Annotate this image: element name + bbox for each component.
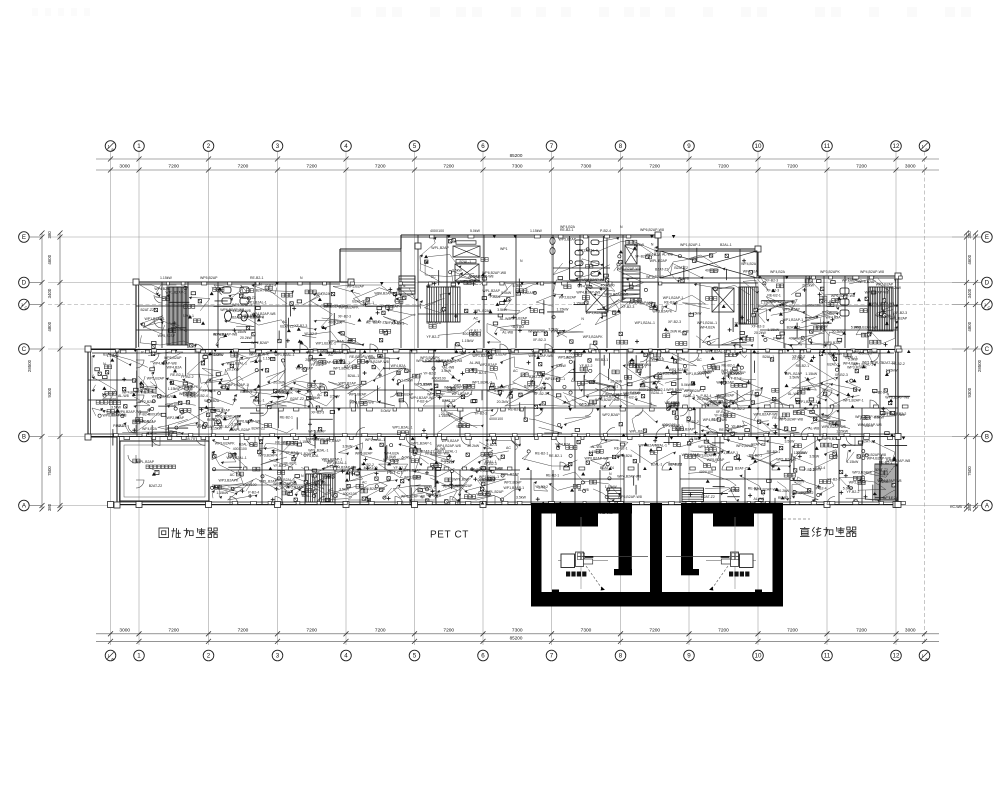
svg-text:WP1,B2AL-1: WP1,B2AL-1 (246, 300, 266, 304)
svg-text:7300: 7300 (581, 627, 592, 633)
svg-text:RE-B2-1: RE-B2-1 (535, 452, 548, 456)
svg-text:B2AL-1: B2AL-1 (651, 391, 663, 395)
svg-text:RE-B2-1: RE-B2-1 (280, 415, 293, 419)
svg-text:B: B (985, 434, 989, 441)
svg-text:AL-W8: AL-W8 (502, 331, 513, 335)
svg-text:P-B2-4: P-B2-4 (814, 466, 825, 470)
svg-text:AL-W8: AL-W8 (213, 332, 224, 336)
svg-text:WP3,B2APK: WP3,B2APK (820, 270, 841, 274)
svg-text:WP4,B2AP-W8: WP4,B2AP-W8 (860, 270, 884, 274)
svg-text:400X100: 400X100 (662, 423, 676, 427)
svg-text:WP1,B2AP-1: WP1,B2AP-1 (411, 441, 432, 445)
svg-text:P-B2-4: P-B2-4 (862, 424, 873, 428)
svg-text:1.15kW: 1.15kW (234, 330, 247, 334)
svg-text:YF-B2-2: YF-B2-2 (304, 332, 317, 336)
svg-text:WF4,B2A: WF4,B2A (391, 364, 407, 368)
svg-text:-8.720: -8.720 (728, 488, 740, 493)
svg-text:WP1,B2AL-1: WP1,B2AL-1 (705, 350, 725, 354)
svg-text:RE-B2-1: RE-B2-1 (879, 460, 892, 464)
svg-text:1.15kW: 1.15kW (263, 356, 276, 360)
svg-text:WPL,B2AP: WPL,B2AP (482, 289, 500, 293)
svg-text:WP4,B2AP-W8: WP4,B2AP-W8 (410, 396, 434, 400)
svg-text:28500: 28500 (977, 359, 982, 372)
svg-text:400X100: 400X100 (699, 470, 713, 474)
svg-text:WP3,B2APK: WP3,B2APK (339, 305, 360, 309)
svg-text:WP4,B2AP-W8: WP4,B2AP-W8 (437, 444, 461, 448)
svg-text:7: 7 (550, 143, 554, 150)
svg-text:AL-W8: AL-W8 (591, 445, 602, 449)
svg-text:7200: 7200 (718, 163, 729, 169)
svg-text:WPL,B2AP: WPL,B2AP (721, 372, 739, 376)
svg-text:AC: AC (506, 446, 511, 450)
svg-text:AC: AC (473, 317, 478, 321)
svg-text:2: 2 (207, 143, 211, 150)
svg-text:6: 6 (481, 653, 485, 660)
svg-text:9300: 9300 (47, 387, 52, 397)
svg-text:20.2kW: 20.2kW (273, 381, 286, 385)
svg-text:1.15kW: 1.15kW (886, 369, 899, 373)
svg-text:B2AT-Z2: B2AT-Z2 (701, 495, 715, 499)
svg-text:XF-B2-3: XF-B2-3 (668, 320, 681, 324)
svg-text:7300: 7300 (581, 163, 592, 169)
svg-text:11: 11 (824, 653, 831, 660)
svg-text:4600: 4600 (47, 254, 52, 264)
svg-text:WP6,B2AP-W8: WP6,B2AP-W8 (885, 395, 909, 399)
svg-text:11: 11 (824, 143, 831, 150)
svg-text:WP5,B2AP: WP5,B2AP (698, 445, 716, 449)
svg-text:WP6,B2AP-W8: WP6,B2AP-W8 (640, 228, 664, 232)
svg-text:RE-B2-1: RE-B2-1 (508, 407, 521, 411)
svg-text:9300: 9300 (967, 387, 972, 397)
svg-text:AL-W8: AL-W8 (808, 427, 819, 431)
svg-text:WP1,B2AL-1: WP1,B2AL-1 (578, 248, 598, 252)
svg-text:P-B2-4: P-B2-4 (197, 394, 208, 398)
svg-text:5.0kW: 5.0kW (365, 356, 376, 360)
svg-text:WP2,B2AP: WP2,B2AP (876, 282, 894, 286)
svg-text:4: 4 (344, 653, 348, 660)
svg-text:5.0kW: 5.0kW (402, 456, 413, 460)
svg-text:WP5,B2AP: WP5,B2AP (164, 356, 182, 360)
svg-text:PET CT: PET CT (430, 530, 469, 541)
svg-text:WP1: WP1 (500, 247, 508, 251)
svg-text:4600: 4600 (967, 254, 972, 264)
svg-text:7300: 7300 (512, 163, 523, 169)
svg-text:B2AT-Z2: B2AT-Z2 (655, 267, 669, 271)
svg-text:4: 4 (344, 143, 348, 150)
svg-text:WP1,B2AL-1: WP1,B2AL-1 (333, 367, 353, 371)
svg-text:-8.700: -8.700 (511, 324, 524, 329)
svg-text:P-B2-4: P-B2-4 (113, 424, 124, 428)
svg-text:RE-B2-1: RE-B2-1 (719, 428, 732, 432)
svg-text:WP1,B2AP-1: WP1,B2AP-1 (783, 318, 804, 322)
svg-text:WPL,B2AP: WPL,B2AP (431, 246, 449, 250)
svg-text:3: 3 (276, 653, 280, 660)
svg-text:5.0kW: 5.0kW (381, 409, 392, 413)
svg-text:WP1,B2AP-1: WP1,B2AP-1 (663, 296, 684, 300)
svg-text:7200: 7200 (238, 627, 249, 633)
svg-text:20.2kW: 20.2kW (777, 489, 790, 493)
svg-text:400X100: 400X100 (233, 447, 247, 451)
svg-text:8: 8 (619, 143, 623, 150)
svg-text:7300: 7300 (512, 627, 523, 633)
svg-text:WP1,B2AL-1: WP1,B2AL-1 (635, 321, 655, 325)
svg-text:20.2kW: 20.2kW (889, 286, 902, 290)
svg-text:YF-B2-2: YF-B2-2 (426, 335, 439, 339)
svg-text:AC: AC (230, 473, 235, 477)
svg-text:WF4,B2A: WF4,B2A (741, 262, 757, 266)
svg-text:RE-B2-1: RE-B2-1 (170, 373, 183, 377)
svg-text:RE-B2-1: RE-B2-1 (549, 454, 562, 458)
svg-text:WF4,B2A: WF4,B2A (770, 270, 786, 274)
svg-text:-8.72: -8.72 (537, 486, 546, 490)
svg-text:WP5,B2AP: WP5,B2AP (414, 383, 432, 387)
svg-text:7200: 7200 (649, 163, 660, 169)
svg-text:1.15kW: 1.15kW (605, 485, 618, 489)
svg-text:8: 8 (619, 653, 623, 660)
svg-text:WP1,B2AL-1: WP1,B2AL-1 (437, 449, 457, 453)
svg-text:3.5kW: 3.5kW (452, 269, 463, 273)
svg-text:WP5,B2AP: WP5,B2AP (308, 430, 326, 434)
svg-text:WP2,B2AP: WP2,B2AP (167, 416, 185, 420)
svg-text:400X100: 400X100 (789, 336, 803, 340)
svg-text:WP3,B2APK: WP3,B2APK (203, 353, 224, 357)
svg-text:YF-B2-2: YF-B2-2 (367, 320, 380, 324)
svg-text:B2AT-Z2: B2AT-Z2 (735, 467, 749, 471)
svg-text:9: 9 (687, 653, 691, 660)
svg-text:WPL,B2AP: WPL,B2AP (137, 460, 155, 464)
svg-text:WP3,B2APK: WP3,B2APK (215, 442, 236, 446)
svg-text:WP3,B2APK: WP3,B2APK (258, 454, 279, 458)
svg-text:3.5kW: 3.5kW (784, 440, 795, 444)
svg-text:5.0kW: 5.0kW (324, 459, 335, 463)
svg-text:7200: 7200 (856, 627, 867, 633)
svg-text:E: E (22, 234, 26, 241)
svg-text:YF-B2-2: YF-B2-2 (846, 490, 859, 494)
svg-text:400X100: 400X100 (489, 417, 503, 421)
svg-text:1.15kW: 1.15kW (573, 302, 586, 306)
svg-text:AC: AC (317, 393, 322, 397)
svg-text:5: 5 (413, 653, 417, 660)
svg-text:7200: 7200 (375, 627, 386, 633)
svg-text:C: C (987, 305, 990, 310)
svg-text:WF4,B2A: WF4,B2A (883, 496, 899, 500)
svg-text:WP6,B2AP-W8: WP6,B2AP-W8 (401, 495, 425, 499)
svg-text:WP1,B2AP-1: WP1,B2AP-1 (638, 444, 659, 448)
svg-text:7200: 7200 (787, 163, 798, 169)
svg-text:1.15kW: 1.15kW (160, 276, 173, 280)
svg-text:AL-W8: AL-W8 (469, 361, 480, 365)
svg-text:RE-B2-1: RE-B2-1 (595, 358, 608, 362)
svg-text:B2AT-Z2: B2AT-Z2 (149, 484, 163, 488)
svg-text:WP1,B2AP-1: WP1,B2AP-1 (228, 383, 249, 387)
svg-text:9: 9 (687, 143, 691, 150)
svg-text:WP4,B2AP-W8: WP4,B2AP-W8 (595, 398, 619, 402)
svg-text:AC: AC (362, 480, 367, 484)
svg-text:AC: AC (697, 358, 702, 362)
svg-text:RE-B2-1: RE-B2-1 (767, 294, 780, 298)
svg-text:WP4,B2AP-W8: WP4,B2AP-W8 (576, 290, 600, 294)
svg-text:B2AL-1: B2AL-1 (352, 299, 364, 303)
svg-text:WP6,B2AP-W8: WP6,B2AP-W8 (617, 267, 641, 271)
svg-text:WP6,B2AP-W8: WP6,B2AP-W8 (220, 308, 244, 312)
svg-text:RC-WB: RC-WB (950, 505, 963, 509)
svg-text:3000: 3000 (905, 627, 916, 633)
svg-text:4800: 4800 (967, 321, 972, 331)
svg-text:WP4,B2AP-W8: WP4,B2AP-W8 (350, 401, 374, 405)
svg-text:1: 1 (137, 143, 141, 150)
svg-text:P-B2-4: P-B2-4 (248, 491, 259, 495)
svg-text:YF-B2-2: YF-B2-2 (423, 371, 436, 375)
svg-text:C: C (985, 346, 990, 353)
svg-text:RE-B2-1: RE-B2-1 (546, 473, 559, 477)
svg-text:20.2kW: 20.2kW (240, 336, 253, 340)
svg-text:PET-CT: PET-CT (387, 470, 403, 475)
svg-text:400X100: 400X100 (430, 229, 444, 233)
svg-text:WPL,B2AP: WPL,B2AP (233, 428, 251, 432)
svg-text:3.5kW: 3.5kW (516, 495, 527, 499)
svg-text:AC: AC (513, 369, 518, 373)
svg-text:WP5,B2AP: WP5,B2AP (200, 276, 218, 280)
svg-text:7200: 7200 (306, 627, 317, 633)
svg-text:B2AL-1: B2AL-1 (348, 374, 360, 378)
svg-text:7200: 7200 (443, 163, 454, 169)
svg-text:WP6,B2AP-W8: WP6,B2AP-W8 (618, 495, 642, 499)
svg-text:3.5kW: 3.5kW (809, 454, 820, 458)
svg-text:WP4,B2AP-W8: WP4,B2AP-W8 (470, 274, 494, 278)
svg-text:WP1,B2AP-1: WP1,B2AP-1 (680, 243, 701, 247)
svg-text:380: 380 (47, 503, 52, 511)
svg-text:1.15kW: 1.15kW (557, 308, 570, 312)
svg-text:XF-B2-3: XF-B2-3 (533, 338, 546, 342)
svg-text:7200: 7200 (856, 163, 867, 169)
svg-text:85200: 85200 (510, 153, 523, 158)
svg-text:WP5,B2AP: WP5,B2AP (355, 452, 373, 456)
svg-text:B2AL-1: B2AL-1 (651, 462, 663, 466)
svg-text:5: 5 (413, 143, 417, 150)
svg-text:28500: 28500 (27, 359, 32, 372)
svg-text:5.0kW: 5.0kW (681, 383, 692, 387)
svg-text:7200: 7200 (718, 627, 729, 633)
svg-text:4800: 4800 (47, 321, 52, 331)
svg-text:XF-B2-3: XF-B2-3 (894, 311, 907, 315)
svg-text:RE-B2-1: RE-B2-1 (721, 363, 734, 367)
svg-text:7200: 7200 (443, 627, 454, 633)
svg-text:7200: 7200 (168, 163, 179, 169)
svg-text:20.2kW: 20.2kW (467, 444, 480, 448)
svg-text:3.5kW: 3.5kW (187, 394, 198, 398)
svg-text:3400: 3400 (967, 288, 972, 298)
svg-text:WF4,B2A: WF4,B2A (384, 452, 400, 456)
svg-text:XF-B2-3: XF-B2-3 (765, 278, 778, 282)
svg-text:WP4,B2AP-W8: WP4,B2AP-W8 (703, 418, 727, 422)
svg-text:20.2kW: 20.2kW (754, 331, 767, 335)
svg-text:AC: AC (282, 320, 287, 324)
svg-text:1.15kW: 1.15kW (530, 229, 543, 233)
svg-text:WP5,B2AP: WP5,B2AP (349, 393, 367, 397)
svg-text:B2AL-1: B2AL-1 (424, 485, 436, 489)
svg-text:20.2kW: 20.2kW (497, 400, 510, 404)
svg-text:B2AT-Z2: B2AT-Z2 (674, 266, 688, 270)
svg-text:3: 3 (276, 143, 280, 150)
svg-text:RE-B2-1: RE-B2-1 (748, 486, 761, 490)
svg-text:5.0kW: 5.0kW (848, 357, 859, 361)
svg-text:-8.70: -8.70 (186, 436, 196, 441)
svg-text:WP4,B2AP-W8: WP4,B2AP-W8 (865, 291, 889, 295)
svg-text:XF-B2-3: XF-B2-3 (835, 373, 848, 377)
svg-text:WP5,B2AP: WP5,B2AP (147, 376, 165, 380)
svg-text:WP5,B2AP: WP5,B2AP (858, 280, 876, 284)
svg-text:2: 2 (207, 653, 211, 660)
svg-text:P-B2-4: P-B2-4 (816, 487, 827, 491)
svg-text:10: 10 (755, 653, 762, 660)
svg-text:7200: 7200 (168, 627, 179, 633)
svg-text:WP4,B2AP-W8: WP4,B2AP-W8 (617, 474, 641, 478)
svg-text:WP3,B2APK: WP3,B2APK (583, 335, 604, 339)
svg-text:WP1,B2AL-1: WP1,B2AL-1 (697, 321, 717, 325)
svg-text:380: 380 (967, 503, 972, 511)
svg-text:3.5kW: 3.5kW (330, 394, 341, 398)
svg-text:AC: AC (212, 418, 217, 422)
svg-text:400X100: 400X100 (638, 388, 652, 392)
svg-text:B2AT-Z2: B2AT-Z2 (252, 426, 266, 430)
svg-text:B2AL-1: B2AL-1 (683, 394, 695, 398)
svg-text:1.15kW: 1.15kW (846, 460, 859, 464)
svg-text:AL-W8: AL-W8 (444, 365, 455, 369)
svg-text:B2AT-Z2: B2AT-Z2 (751, 443, 765, 447)
svg-text:B: B (22, 434, 26, 441)
svg-text:7200: 7200 (787, 627, 798, 633)
svg-text:XF-B2-3: XF-B2-3 (338, 315, 351, 319)
svg-text:1.15kW: 1.15kW (805, 372, 818, 376)
svg-text:400X100: 400X100 (807, 304, 821, 308)
svg-text:B2AT-Z2: B2AT-Z2 (874, 468, 888, 472)
svg-text:B2AL-1: B2AL-1 (720, 243, 732, 247)
svg-text:WP1,B2AP-1: WP1,B2AP-1 (843, 398, 864, 402)
svg-text:380: 380 (47, 231, 52, 239)
svg-text:WF4,B2A: WF4,B2A (560, 225, 576, 229)
svg-text:7200: 7200 (306, 163, 317, 169)
svg-text:B2AT-Z2: B2AT-Z2 (140, 308, 154, 312)
svg-text:XF-B2-3: XF-B2-3 (751, 325, 764, 329)
svg-text:WP6,B2AP-W8: WP6,B2AP-W8 (779, 417, 803, 421)
svg-text:B2AL-1: B2AL-1 (460, 260, 472, 264)
svg-text:AL-W8: AL-W8 (662, 253, 673, 257)
svg-text:RE-B2-1: RE-B2-1 (250, 276, 263, 280)
svg-text:WP6,B2AP-W8: WP6,B2AP-W8 (117, 410, 141, 414)
svg-text:WP1,B2AP-1: WP1,B2AP-1 (166, 291, 187, 295)
svg-text:85200: 85200 (510, 636, 523, 641)
svg-text:3.5kW: 3.5kW (874, 415, 885, 419)
svg-text:C: C (24, 305, 27, 310)
svg-text:B2AT-Z2: B2AT-Z2 (882, 361, 896, 365)
svg-text:B2AL-1: B2AL-1 (182, 314, 194, 318)
svg-text:RE-B2-1: RE-B2-1 (796, 364, 809, 368)
svg-text:AL-W8: AL-W8 (500, 317, 511, 321)
svg-text:E: E (985, 234, 989, 241)
svg-text:YF-B2-2: YF-B2-2 (792, 354, 805, 358)
svg-text:C: C (22, 346, 27, 353)
svg-text:AC: AC (746, 318, 751, 322)
svg-text:5.0kW: 5.0kW (470, 229, 481, 233)
svg-text:WF4,B2A: WF4,B2A (142, 427, 158, 431)
svg-text:1.15kW: 1.15kW (767, 328, 780, 332)
svg-text:1.15kW: 1.15kW (824, 352, 837, 356)
svg-text:1.15kW: 1.15kW (216, 491, 229, 495)
svg-text:P-B2-4: P-B2-4 (600, 229, 611, 233)
svg-text:20.2kW: 20.2kW (802, 283, 815, 287)
svg-text:7500: 7500 (967, 466, 972, 476)
svg-text:5.0kW: 5.0kW (851, 325, 862, 329)
svg-text:D: D (22, 280, 27, 287)
svg-text:3000: 3000 (119, 627, 130, 633)
svg-text:WP2,B2AP: WP2,B2AP (504, 481, 522, 485)
svg-text:WF4,B2A: WF4,B2A (303, 454, 319, 458)
svg-text:B2AT-Z4: B2AT-Z4 (600, 466, 614, 470)
svg-text:XF-B2-3: XF-B2-3 (621, 305, 634, 309)
svg-text:WP1,B2AP-1: WP1,B2AP-1 (686, 372, 707, 376)
svg-text:RE-B2-1: RE-B2-1 (349, 355, 362, 359)
svg-text:WP1,B2AL-1: WP1,B2AL-1 (392, 426, 412, 430)
svg-text:12: 12 (893, 653, 900, 660)
svg-text:3.5kW: 3.5kW (789, 375, 800, 379)
svg-text:WP3,B2APK: WP3,B2APK (241, 314, 262, 318)
svg-text:400X100: 400X100 (432, 377, 446, 381)
svg-text:1.15kW: 1.15kW (836, 429, 849, 433)
svg-text:AL-W8: AL-W8 (578, 488, 589, 492)
svg-text:WP1,B2AL-1: WP1,B2AL-1 (472, 381, 492, 385)
svg-text:XF-B2-3: XF-B2-3 (669, 462, 682, 466)
svg-text:WF4,B2A: WF4,B2A (826, 316, 842, 320)
svg-text:7500: 7500 (47, 466, 52, 476)
svg-text:WP2,B2AP: WP2,B2AP (251, 341, 269, 345)
svg-text:RE-B2-1: RE-B2-1 (749, 453, 762, 457)
svg-text:RE-B2-1: RE-B2-1 (778, 496, 791, 500)
svg-text:3000: 3000 (119, 163, 130, 169)
svg-text:AL-W8: AL-W8 (118, 394, 129, 398)
svg-text:1.15kW: 1.15kW (462, 339, 475, 343)
svg-text:6: 6 (481, 143, 485, 150)
svg-text:WP3,B2APK: WP3,B2APK (218, 478, 239, 482)
svg-text:AC: AC (566, 356, 571, 360)
svg-text:3.5kW: 3.5kW (548, 328, 559, 332)
svg-text:WP1,B2AP-1: WP1,B2AP-1 (503, 486, 524, 490)
svg-text:12: 12 (893, 143, 900, 150)
svg-text:YF-B2-2: YF-B2-2 (732, 407, 745, 411)
svg-text:WP1,B2AL-1: WP1,B2AL-1 (798, 400, 818, 404)
svg-text:3.5kW: 3.5kW (497, 308, 508, 312)
svg-text:3400: 3400 (47, 288, 52, 298)
svg-text:YF-B2-2: YF-B2-2 (468, 329, 481, 333)
svg-text:B2AT-Z2: B2AT-Z2 (442, 399, 456, 403)
svg-text:XF-B2-3: XF-B2-3 (391, 321, 404, 325)
svg-text:AL-W8: AL-W8 (788, 392, 799, 396)
svg-text:WP6,B2AP-W8: WP6,B2AP-W8 (604, 293, 628, 297)
svg-text:7200: 7200 (375, 163, 386, 169)
svg-text:WP6,B2AP-W8: WP6,B2AP-W8 (529, 354, 553, 358)
svg-text:10: 10 (755, 143, 762, 150)
svg-text:WP1,B2AL-1: WP1,B2AL-1 (274, 353, 294, 357)
svg-text:1: 1 (137, 653, 141, 660)
svg-text:WPL,B2AP: WPL,B2AP (650, 259, 668, 263)
svg-text:WP2,B2AP: WP2,B2AP (602, 413, 620, 417)
svg-text:7: 7 (550, 653, 554, 660)
svg-text:WP5,B2AP: WP5,B2AP (158, 334, 176, 338)
svg-text:3000: 3000 (905, 163, 916, 169)
svg-text:P-B2-4: P-B2-4 (265, 283, 276, 287)
svg-text:3.5kW: 3.5kW (441, 369, 452, 373)
svg-text:7200: 7200 (649, 627, 660, 633)
svg-text:WPL,B2AP: WPL,B2AP (890, 317, 908, 321)
